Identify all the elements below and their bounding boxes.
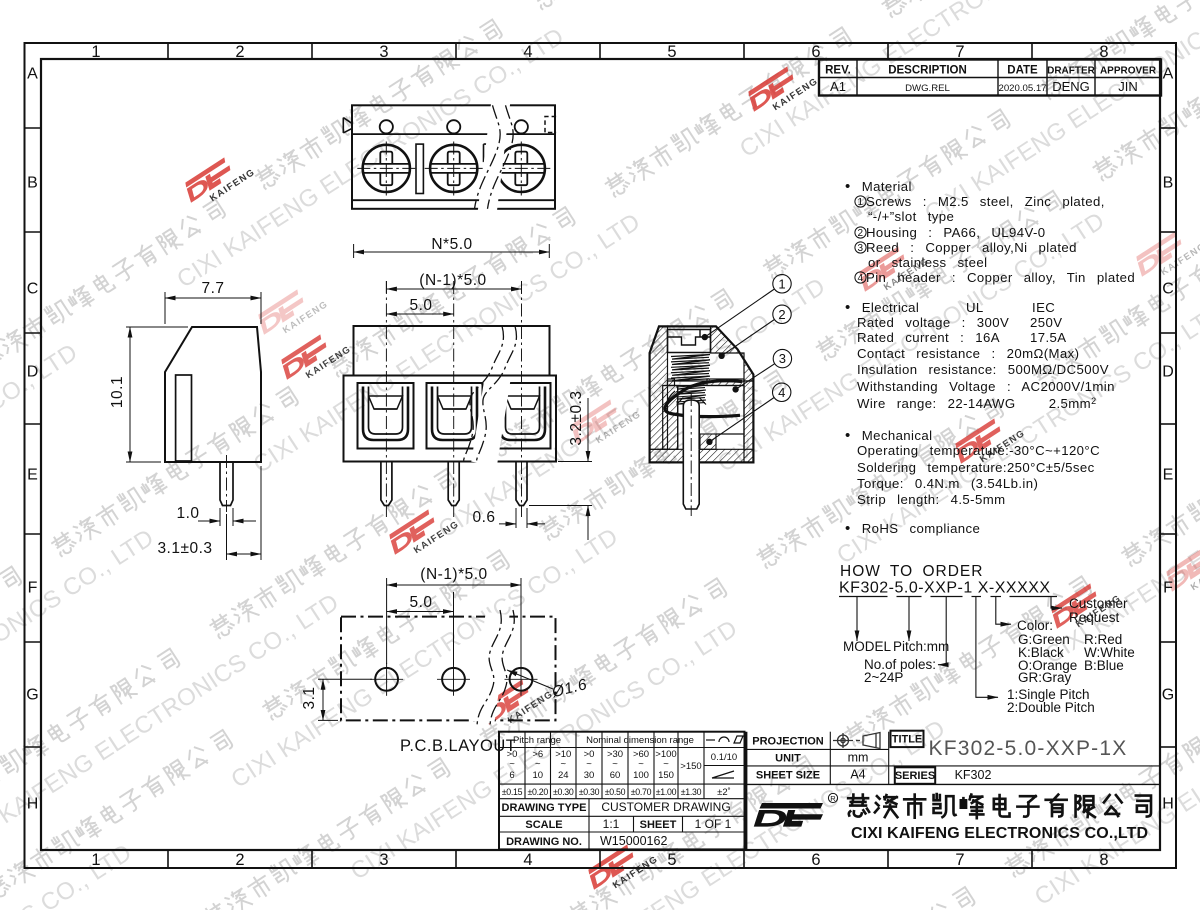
- svg-text:REV.: REV.: [825, 65, 851, 77]
- svg-text:5: 5: [667, 851, 676, 869]
- svg-text:5.0: 5.0: [409, 297, 432, 314]
- svg-text:2: 2: [778, 307, 785, 322]
- svg-text:Housing : PA66, UL94V-0: Housing : PA66, UL94V-0: [866, 225, 1046, 240]
- svg-text:3: 3: [858, 243, 864, 254]
- svg-text:Pin header : Copper alloy, Tin: Pin header : Copper alloy, Tin plated: [866, 270, 1135, 285]
- svg-text:W15000162: W15000162: [600, 834, 667, 848]
- svg-text:3: 3: [379, 851, 388, 869]
- svg-text:100: 100: [633, 770, 649, 781]
- svg-text:24: 24: [558, 770, 569, 781]
- svg-text:Request: Request: [1069, 610, 1120, 625]
- svg-text:A4: A4: [850, 768, 865, 782]
- svg-text:2: 2: [858, 228, 864, 239]
- svg-text:• RoHS compliance: • RoHS compliance: [845, 520, 980, 537]
- svg-text:D: D: [1162, 364, 1174, 381]
- svg-text:1.0: 1.0: [176, 505, 199, 522]
- svg-text:5: 5: [667, 43, 676, 61]
- svg-text:E: E: [27, 467, 38, 484]
- svg-text:1: 1: [91, 43, 100, 61]
- svg-text:7: 7: [955, 851, 964, 869]
- svg-text:B: B: [1163, 175, 1174, 192]
- svg-text:(N-1)*5.0: (N-1)*5.0: [419, 272, 486, 289]
- svg-text:5.0: 5.0: [409, 594, 432, 611]
- svg-text:DESCRIPTION: DESCRIPTION: [888, 65, 967, 77]
- svg-text:B: B: [27, 175, 38, 192]
- svg-text:H: H: [1162, 796, 1174, 813]
- svg-text:~: ~: [586, 759, 592, 770]
- svg-text:C: C: [1162, 281, 1174, 298]
- svg-text:A1: A1: [830, 79, 846, 94]
- svg-text:UNIT: UNIT: [775, 753, 801, 765]
- svg-text:±1.30: ±1.30: [681, 787, 702, 797]
- svg-text:DATE: DATE: [1007, 65, 1038, 77]
- svg-text:APPROVER: APPROVER: [1100, 66, 1157, 77]
- svg-text:3: 3: [379, 43, 388, 61]
- svg-text:3: 3: [779, 351, 786, 366]
- svg-text:CUSTOMER DRAWING: CUSTOMER DRAWING: [601, 800, 730, 814]
- svg-text:F: F: [1163, 580, 1173, 597]
- svg-text:R: R: [830, 794, 836, 803]
- svg-text:30: 30: [584, 770, 595, 781]
- svg-text:HOW TO ORDER: HOW TO ORDER: [840, 563, 983, 580]
- svg-text:A: A: [1163, 66, 1174, 83]
- svg-text:10: 10: [532, 770, 543, 781]
- svg-text:MODEL: MODEL: [843, 639, 892, 654]
- svg-text:“-/+”slot type: “-/+”slot type: [868, 209, 954, 224]
- svg-text:Pitch:mm: Pitch:mm: [893, 639, 949, 654]
- svg-text:~: ~: [509, 759, 515, 770]
- svg-text:Rated current : 16A17.5A: Rated current : 16A17.5A: [857, 330, 1066, 345]
- svg-text:Nominal dimension range: Nominal dimension range: [586, 735, 694, 746]
- svg-text:SHEET SIZE: SHEET SIZE: [756, 770, 820, 782]
- svg-text:±0.70: ±0.70: [631, 787, 652, 797]
- svg-text:Pitch range: Pitch range: [513, 735, 561, 746]
- svg-text:1: 1: [778, 276, 785, 291]
- svg-text:2020.05.17: 2020.05.17: [998, 83, 1046, 94]
- svg-text:150: 150: [658, 770, 674, 781]
- svg-text:±0.15: ±0.15: [502, 787, 523, 797]
- svg-text:±0.50: ±0.50: [605, 787, 626, 797]
- svg-text:CIXI KAIFENG ELECTRONICS CO.,L: CIXI KAIFENG ELECTRONICS CO.,LTD: [851, 825, 1148, 842]
- svg-text:F: F: [28, 580, 38, 597]
- svg-text:• Material: • Material: [845, 178, 912, 195]
- svg-text:G: G: [26, 687, 38, 704]
- svg-text:or stainless steel: or stainless steel: [868, 255, 987, 270]
- svg-text:PROJECTION: PROJECTION: [752, 736, 824, 748]
- svg-text:Soldering temperature:250°C±5/: Soldering temperature:250°C±5/5sec: [857, 460, 1095, 475]
- svg-text:±2˚: ±2˚: [717, 787, 731, 798]
- svg-text:6: 6: [509, 770, 514, 781]
- svg-text:Operating temperature:-30°C~+1: Operating temperature:-30°C~+120°C: [857, 443, 1100, 458]
- svg-text:SHEET: SHEET: [640, 819, 677, 831]
- svg-text:E: E: [1163, 467, 1174, 484]
- svg-text:Contact resistance : 20mΩ(Max): Contact resistance : 20mΩ(Max): [857, 346, 1079, 361]
- svg-text:4: 4: [778, 385, 785, 400]
- svg-text:SERIES: SERIES: [895, 770, 935, 782]
- svg-text:Screws : M2.5 steel, Zinc plat: Screws : M2.5 steel, Zinc plated,: [866, 194, 1105, 209]
- svg-text:DRAWING TYPE: DRAWING TYPE: [502, 802, 587, 814]
- svg-text:4: 4: [858, 273, 864, 284]
- svg-text:TITLE: TITLE: [892, 734, 923, 746]
- svg-text:• Mechanical: • Mechanical: [845, 427, 932, 444]
- svg-text:KF302-5.0-XXP-1X: KF302-5.0-XXP-1X: [929, 737, 1128, 760]
- svg-text:4: 4: [523, 43, 532, 61]
- svg-text:Reed : Copper alloy,Ni plated: Reed : Copper alloy,Ni plated: [866, 240, 1077, 255]
- svg-text:Insulation resistance: 500MΩ/D: Insulation resistance: 500MΩ/DC500V: [857, 362, 1109, 377]
- svg-text:~: ~: [638, 759, 644, 770]
- svg-text:0.6: 0.6: [472, 509, 495, 526]
- svg-text:DRAFTER: DRAFTER: [1047, 66, 1096, 77]
- svg-text:3.2±0.3: 3.2±0.3: [568, 390, 585, 445]
- svg-text:3.1: 3.1: [301, 686, 318, 709]
- svg-text:Customer: Customer: [1069, 596, 1128, 611]
- svg-text:DWG.REL: DWG.REL: [905, 83, 950, 94]
- svg-text:1: 1: [858, 197, 864, 208]
- svg-text:>150: >150: [680, 761, 701, 772]
- svg-text:(N-1)*5.0: (N-1)*5.0: [420, 566, 487, 583]
- svg-text:JIN: JIN: [1118, 79, 1138, 94]
- svg-text:KF302: KF302: [955, 768, 992, 782]
- svg-text:Wire range: 22-14AWG 2.5mm2: Wire range: 22-14AWG 2.5mm2: [857, 396, 1096, 411]
- svg-text:1: 1: [91, 851, 100, 869]
- svg-text:1 OF 1: 1 OF 1: [695, 817, 732, 831]
- svg-text:1:1: 1:1: [603, 817, 620, 831]
- svg-text:0.1/10: 0.1/10: [711, 752, 737, 763]
- svg-text:±0.20: ±0.20: [528, 787, 549, 797]
- svg-text:~: ~: [612, 759, 618, 770]
- svg-text:8: 8: [1099, 851, 1108, 869]
- svg-text:D: D: [27, 364, 39, 381]
- svg-text:±0.30: ±0.30: [579, 787, 600, 797]
- svg-text:mm: mm: [848, 751, 869, 765]
- svg-text:~: ~: [663, 759, 669, 770]
- svg-text:2: 2: [235, 851, 244, 869]
- svg-text:±0.30: ±0.30: [553, 787, 574, 797]
- svg-text:DRAWING NO.: DRAWING NO.: [506, 836, 582, 848]
- svg-text:Rated voltage : 300V250V: Rated voltage : 300V250V: [857, 315, 1062, 330]
- svg-text:~: ~: [535, 759, 541, 770]
- svg-text:H: H: [27, 796, 39, 813]
- svg-text:7.7: 7.7: [201, 280, 224, 297]
- svg-text:6: 6: [811, 851, 820, 869]
- svg-text:2: 2: [235, 43, 244, 61]
- svg-text:±1.00: ±1.00: [656, 787, 677, 797]
- svg-text:A: A: [27, 66, 38, 83]
- svg-text:SCALE: SCALE: [525, 819, 562, 831]
- svg-text:N*5.0: N*5.0: [431, 236, 472, 253]
- svg-text:4: 4: [523, 851, 532, 869]
- svg-text:~: ~: [560, 759, 566, 770]
- svg-text:10.1: 10.1: [109, 376, 126, 408]
- svg-text:2~24P: 2~24P: [864, 670, 903, 685]
- svg-text:DENG: DENG: [1052, 79, 1090, 94]
- svg-text:Withstanding Voltage : AC2000V: Withstanding Voltage : AC2000V/1min: [857, 379, 1115, 394]
- svg-text:Torque: 0.4N.m (3.54Lb.in): Torque: 0.4N.m (3.54Lb.in): [857, 476, 1038, 491]
- svg-text:G: G: [1162, 687, 1174, 704]
- svg-text:C: C: [27, 281, 39, 298]
- svg-text:KF302-5.0-XXP-1 X-XXXXX: KF302-5.0-XXP-1 X-XXXXX: [839, 580, 1051, 597]
- svg-text:2:Double Pitch: 2:Double Pitch: [1007, 700, 1095, 715]
- svg-text:60: 60: [610, 770, 621, 781]
- svg-text:Strip length: 4.5-5mm: Strip length: 4.5-5mm: [857, 492, 1005, 507]
- svg-text:GR:Gray: GR:Gray: [1018, 670, 1072, 685]
- svg-text:3.1±0.3: 3.1±0.3: [157, 540, 212, 557]
- svg-text:Color:: Color:: [1017, 618, 1053, 633]
